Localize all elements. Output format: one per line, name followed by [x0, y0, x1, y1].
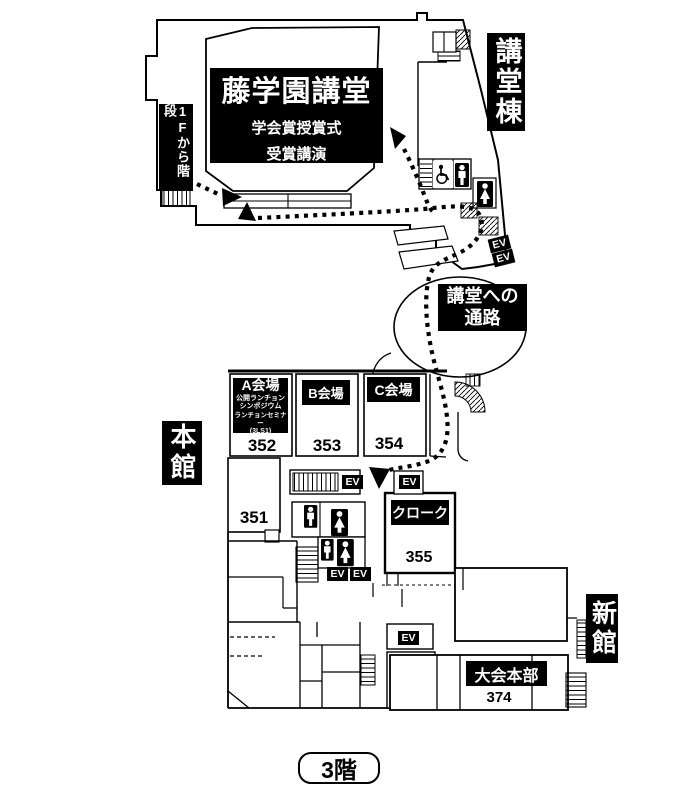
headquarters-label: 大会本部	[466, 661, 547, 686]
stairs-hatch	[566, 673, 586, 707]
auditorium-label: 藤学園講堂 学会賞授賞式 受賞講演	[210, 68, 383, 163]
elevator-badge: EV	[399, 475, 420, 489]
mens-toilet-icon	[304, 505, 317, 528]
hall-a-detail2: シンポジウム	[240, 403, 282, 411]
elevator-badge: EV	[398, 631, 419, 645]
auditorium-entrance-steps	[224, 194, 351, 208]
new-building-label: 新館	[586, 594, 618, 663]
womens-toilet-icon	[331, 509, 348, 536]
auditorium-wing-label: 講堂棟	[487, 33, 525, 131]
stairs-from-1f-hatch	[162, 190, 190, 206]
passage-label: 講堂への 通路	[438, 284, 527, 331]
stairs-hatch	[577, 620, 586, 658]
stairs-hatch	[420, 161, 432, 187]
stairs-from-1f-label: 1Fから階段	[159, 104, 193, 191]
room-number-352: 352	[236, 436, 288, 456]
cloak-label: クローク	[391, 500, 449, 525]
womens-toilet-icon	[337, 539, 354, 566]
passage-line2: 通路	[465, 308, 501, 329]
hall-a-name: A会場	[241, 375, 279, 395]
stairs-hatch	[466, 374, 480, 386]
auditorium-event-1: 学会賞授賞式	[251, 117, 341, 138]
accessible-toilet-icon	[433, 161, 453, 188]
stairs-hatch	[293, 473, 338, 491]
passage-line1: 講堂への	[447, 286, 519, 307]
stairs-hatch	[361, 655, 375, 685]
womens-toilet-icon	[477, 181, 493, 207]
hall-b-label: B会場	[302, 380, 350, 405]
room-number-355: 355	[397, 549, 441, 567]
mens-toilet-icon	[455, 163, 469, 187]
hall-a-detail1: 公開ランチョン	[236, 395, 285, 403]
main-building-label: 本館	[162, 421, 202, 485]
room-number-374: 374	[477, 689, 521, 706]
route-arrow-down	[369, 467, 390, 489]
auditorium-name: 藤学園講堂	[221, 68, 371, 110]
room-number-353: 353	[301, 436, 353, 456]
hall-c-label: C会場	[367, 377, 420, 402]
hall-a-detail3: ランチョンセミナー	[233, 412, 288, 427]
hall-a-detail4: (3LS1)	[250, 428, 271, 436]
stairs-hatch	[456, 30, 470, 49]
elevator-badge: EV	[342, 475, 363, 489]
hall-a-label: A会場 公開ランチョン シンポジウム ランチョンセミナー (3LS1)	[233, 378, 288, 433]
floor-label: 3階	[298, 752, 380, 784]
stairs-hatch	[296, 547, 318, 582]
elevator-badge: EV	[350, 567, 371, 581]
mens-toilet-icon	[321, 539, 334, 561]
elevator-badge: EV	[327, 567, 348, 581]
auditorium-event-2: 受賞講演	[266, 143, 326, 164]
curved-stairs	[455, 382, 485, 412]
room-number-354: 354	[363, 434, 415, 454]
room-number-351: 351	[232, 508, 276, 528]
floor-plan-page: 藤学園講堂 学会賞授賞式 受賞講演 1Fから階段 講堂棟 本館 新館 講堂への …	[0, 0, 677, 811]
